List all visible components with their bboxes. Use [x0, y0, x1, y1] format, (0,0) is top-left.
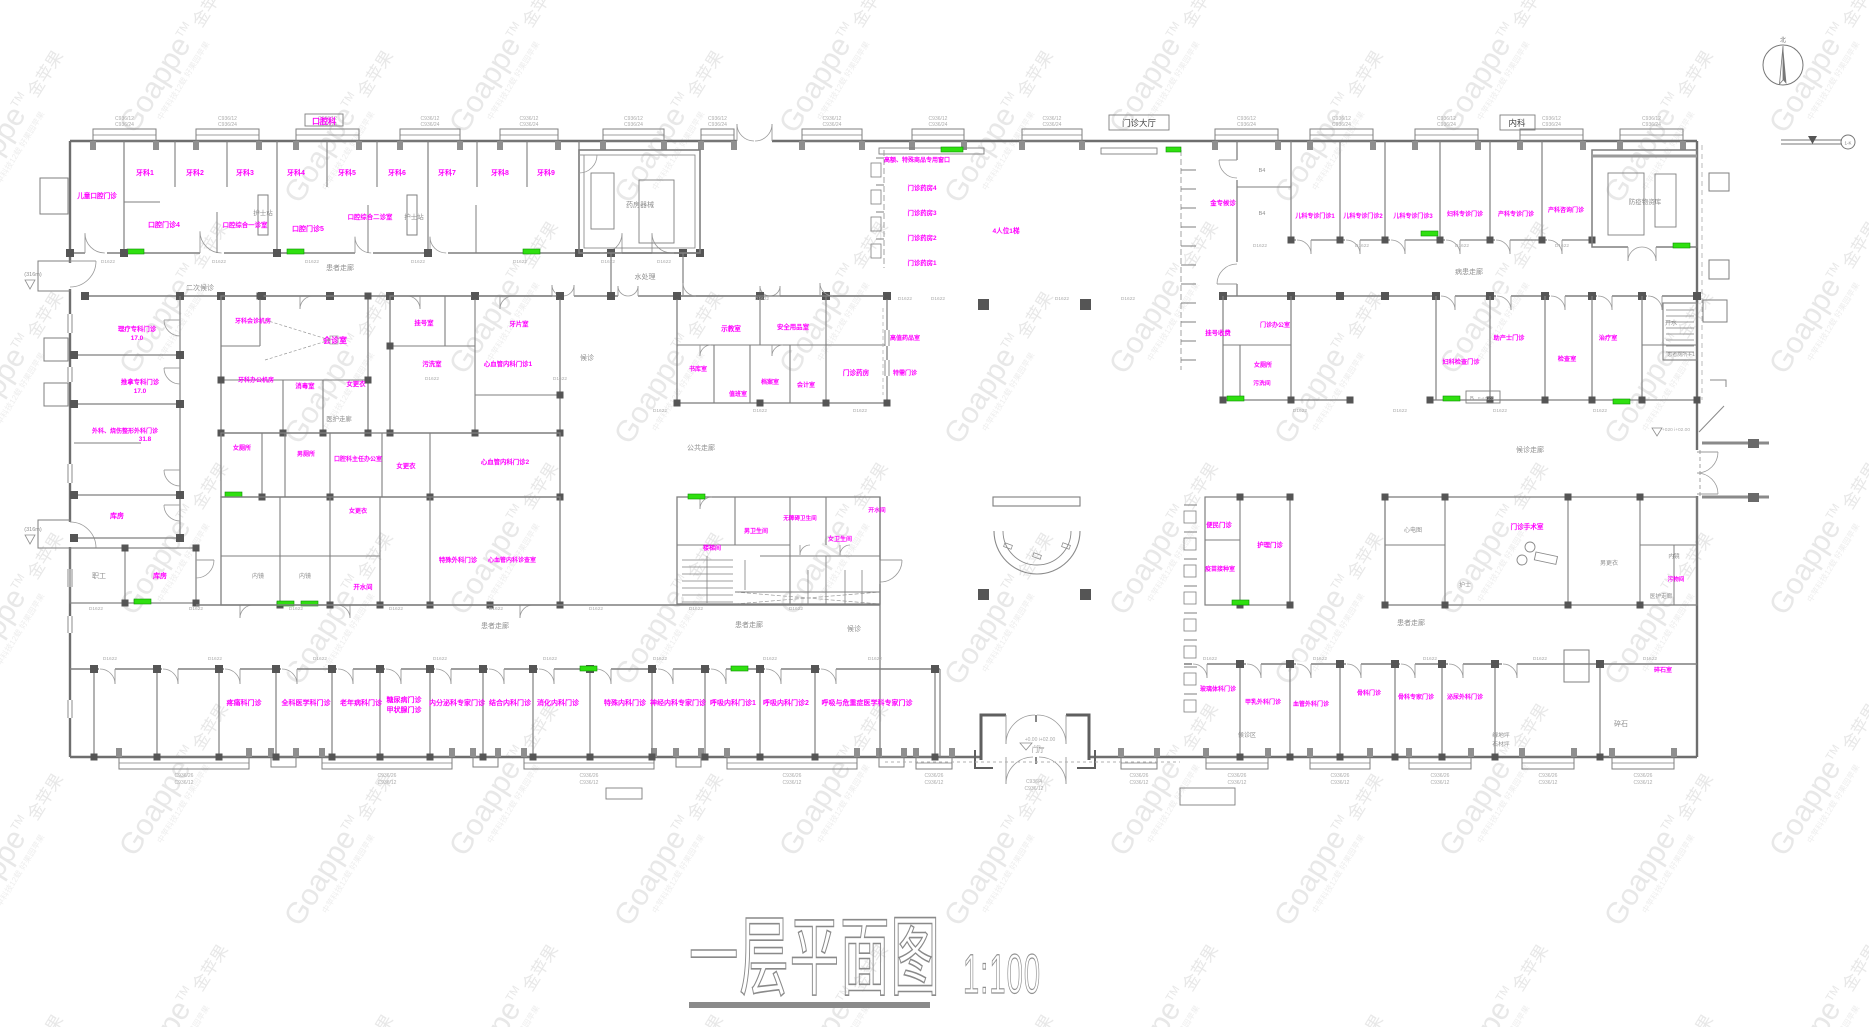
svg-text:C936/24: C936/24: [1542, 122, 1561, 128]
svg-text:档案室: 档案室: [760, 378, 779, 386]
svg-text:二次候诊: 二次候诊: [186, 283, 214, 292]
svg-text:C936/26: C936/26: [378, 773, 397, 779]
svg-text:C936/12: C936/12: [175, 780, 194, 786]
svg-text:C936/26: C936/26: [1130, 773, 1149, 779]
svg-text:女更衣: 女更衣: [349, 507, 367, 515]
svg-text:一层平面图: 一层平面图: [689, 909, 941, 1008]
svg-text:特殊内科门诊: 特殊内科门诊: [604, 698, 647, 707]
svg-text:护士: 护士: [1459, 581, 1471, 589]
svg-text:口腔门诊4: 口腔门诊4: [148, 220, 180, 229]
svg-text:内镜: 内镜: [252, 572, 264, 580]
svg-text:D1622: D1622: [1055, 296, 1069, 302]
svg-text:呼吸与危重症医学科专家门诊: 呼吸与危重症医学科专家门诊: [822, 698, 914, 707]
svg-text:患者走廊: 患者走廊: [326, 263, 354, 272]
svg-text:产科专诊门诊: 产科专诊门诊: [1498, 210, 1535, 218]
svg-text:门诊药房2: 门诊药房2: [907, 233, 937, 242]
svg-text:D1622: D1622: [853, 408, 867, 414]
svg-text:D1622: D1622: [789, 606, 803, 612]
svg-text:女厕所: 女厕所: [1254, 361, 1272, 369]
svg-text:病患走廊: 病患走廊: [1455, 267, 1483, 276]
svg-text:心血管内科门诊2: 心血管内科门诊2: [481, 457, 530, 466]
svg-text:医护走廊: 医护走廊: [326, 414, 352, 423]
svg-text:女卫生间: 女卫生间: [828, 535, 852, 543]
svg-text:C936/24: C936/24: [218, 122, 237, 128]
svg-text:男更衣: 男更衣: [1600, 559, 1618, 567]
svg-text:C936/12: C936/12: [1634, 780, 1653, 786]
svg-text:血管外科门诊: 血管外科门诊: [1293, 700, 1330, 708]
svg-text:C936/26: C936/26: [175, 773, 194, 779]
svg-text:候诊: 候诊: [847, 624, 861, 633]
svg-text:职工: 职工: [92, 572, 106, 580]
svg-text:1:100: 1:100: [963, 944, 1041, 1005]
svg-text:D1622: D1622: [313, 656, 327, 662]
svg-text:绿地坪: 绿地坪: [1492, 731, 1510, 739]
svg-text:门诊药房1: 门诊药房1: [907, 258, 937, 267]
svg-text:儿科专诊门诊2: 儿科专诊门诊2: [1342, 212, 1383, 220]
svg-text:C936/12: C936/12: [580, 780, 599, 786]
svg-text:消毒室: 消毒室: [295, 381, 315, 390]
svg-text:心血管内科诊查室: 心血管内科诊查室: [488, 556, 536, 564]
svg-text:D1622: D1622: [425, 376, 439, 382]
svg-text:污洗间: 污洗间: [1253, 379, 1271, 387]
svg-text:1-K: 1-K: [1844, 141, 1851, 146]
svg-text:C936/4: C936/4: [1026, 779, 1042, 785]
svg-text:+020 i+02.00: +020 i+02.00: [1662, 427, 1690, 433]
svg-text:17.0: 17.0: [134, 388, 147, 395]
svg-text:4人位1梯: 4人位1梯: [992, 226, 1020, 235]
svg-text:玻璃体科门诊: 玻璃体科门诊: [1200, 685, 1237, 693]
svg-text:牙科7: 牙科7: [438, 168, 456, 177]
svg-text:C936/26: C936/26: [1228, 773, 1247, 779]
svg-text:D1622: D1622: [1393, 408, 1407, 414]
svg-text:妇科检查门诊: 妇科检查门诊: [1441, 358, 1480, 366]
svg-text:C936/12: C936/12: [1331, 780, 1350, 786]
svg-text:牙科5: 牙科5: [338, 168, 356, 177]
svg-text:挂号室: 挂号室: [414, 318, 434, 327]
svg-text:口腔综合一诊室: 口腔综合一诊室: [223, 220, 268, 229]
svg-text:D1622: D1622: [755, 296, 769, 302]
svg-text:楼梯间: 楼梯间: [703, 544, 721, 552]
svg-text:F-A0101: F-A0101: [1478, 396, 1495, 401]
svg-text:D1622: D1622: [1121, 296, 1135, 302]
svg-text:C936/12: C936/12: [1025, 786, 1044, 792]
svg-text:污洗室: 污洗室: [422, 359, 442, 368]
svg-text:D1622: D1622: [1355, 243, 1369, 249]
svg-text:C936/12: C936/12: [378, 780, 397, 786]
svg-text:门诊药房: 门诊药房: [843, 368, 870, 377]
svg-text:D1622: D1622: [653, 656, 667, 662]
svg-text:C936/24: C936/24: [115, 122, 134, 128]
svg-text:特需门诊: 特需门诊: [893, 369, 918, 377]
svg-text:D1622: D1622: [1533, 656, 1547, 662]
svg-text:D1622: D1622: [589, 606, 603, 612]
svg-text:D1622: D1622: [543, 656, 557, 662]
svg-text:D1622: D1622: [513, 259, 527, 265]
svg-text:17.0: 17.0: [131, 335, 144, 342]
svg-text:B4: B4: [1259, 168, 1266, 174]
svg-text:D1622: D1622: [1253, 243, 1267, 249]
svg-text:牙科9: 牙科9: [537, 168, 555, 177]
svg-text:便民门诊: 便民门诊: [1206, 520, 1232, 529]
svg-text:C936/24: C936/24: [421, 122, 440, 128]
svg-text:库房: 库房: [110, 511, 124, 520]
svg-text:门诊办公室: 门诊办公室: [1260, 321, 1290, 329]
svg-text:B4: B4: [1259, 211, 1266, 217]
svg-text:糖尿病门诊: 糖尿病门诊: [387, 695, 423, 704]
svg-text:疼痛科门诊: 疼痛科门诊: [227, 698, 263, 707]
svg-text:内分泌科专家门诊: 内分泌科专家门诊: [429, 698, 486, 707]
svg-text:理疗专科门诊: 理疗专科门诊: [118, 324, 157, 333]
svg-text:D1622: D1622: [101, 259, 115, 265]
svg-text:助产士门诊: 助产士门诊: [1494, 334, 1526, 342]
svg-text:D1622: D1622: [389, 606, 403, 612]
svg-text:泌尿外科门诊: 泌尿外科门诊: [1447, 693, 1484, 701]
svg-text:D1622: D1622: [1423, 656, 1437, 662]
svg-text:儿科专诊门诊3: 儿科专诊门诊3: [1392, 212, 1433, 220]
svg-text:C936/12: C936/12: [1228, 780, 1247, 786]
svg-text:D1622: D1622: [601, 259, 615, 265]
svg-text:D1622: D1622: [212, 259, 226, 265]
svg-text:D1622: D1622: [1293, 408, 1307, 414]
svg-text:D1622: D1622: [189, 606, 203, 612]
svg-text:护士站: 护士站: [404, 212, 424, 221]
svg-text:石材坪: 石材坪: [1492, 740, 1510, 748]
svg-text:D1622: D1622: [653, 408, 667, 414]
svg-text:男厕所: 男厕所: [297, 450, 315, 458]
svg-text:北: 北: [1780, 36, 1786, 44]
svg-text:D1622: D1622: [1643, 656, 1657, 662]
svg-text:金专候诊: 金专候诊: [1209, 198, 1236, 207]
svg-text:医护走廊: 医护走廊: [1650, 592, 1673, 600]
svg-text:门诊大厅: 门诊大厅: [1122, 118, 1157, 128]
svg-text:候诊: 候诊: [580, 353, 594, 362]
svg-text:呼吸内科门诊1: 呼吸内科门诊1: [710, 698, 756, 707]
svg-text:会诊室: 会诊室: [323, 335, 347, 345]
svg-text:开水间: 开水间: [353, 582, 372, 591]
svg-text:儿童口腔门诊: 儿童口腔门诊: [76, 191, 117, 200]
svg-text:D1622: D1622: [1455, 243, 1469, 249]
svg-text:牙科办公机房: 牙科办公机房: [238, 376, 274, 384]
svg-text:检查室: 检查室: [1558, 355, 1577, 363]
svg-text:牙科会诊机房: 牙科会诊机房: [235, 317, 271, 325]
svg-text:公共走廊: 公共走廊: [687, 443, 715, 452]
svg-text:31.8: 31.8: [139, 436, 152, 443]
svg-text:D1622: D1622: [208, 656, 222, 662]
svg-text:会计室: 会计室: [797, 381, 815, 389]
svg-text:D1622: D1622: [289, 606, 303, 612]
svg-text:甲状腺门诊: 甲状腺门诊: [387, 705, 423, 714]
svg-text:无障碍卫生间: 无障碍卫生间: [782, 514, 817, 522]
svg-text:C936/24: C936/24: [823, 122, 842, 128]
svg-text:特殊外科门诊: 特殊外科门诊: [439, 555, 478, 564]
svg-text:库房: 库房: [153, 571, 167, 580]
svg-text:女厕所: 女厕所: [233, 444, 251, 452]
svg-text:C936/12: C936/12: [925, 780, 944, 786]
svg-text:D1622: D1622: [763, 656, 777, 662]
svg-text:C936/24: C936/24: [1043, 122, 1062, 128]
svg-text:C936/24: C936/24: [624, 122, 643, 128]
svg-text:外科、烧伤整形外科门诊: 外科、烧伤整形外科门诊: [91, 427, 159, 435]
svg-text:门诊药房4: 门诊药房4: [907, 183, 937, 192]
svg-text:高额、特殊商品专用窗口: 高额、特殊商品专用窗口: [884, 156, 950, 164]
svg-text:C936/26: C936/26: [783, 773, 802, 779]
svg-text:口腔科主任办公室: 口腔科主任办公室: [334, 455, 382, 463]
svg-text:老年病科门诊: 老年病科门诊: [339, 698, 383, 707]
svg-text:C936/24: C936/24: [1437, 122, 1456, 128]
svg-text:甲乳外科门诊: 甲乳外科门诊: [1245, 698, 1282, 706]
svg-text:牙科4: 牙科4: [287, 168, 305, 177]
svg-text:候诊走廊: 候诊走廊: [1516, 445, 1544, 454]
svg-text:D1622: D1622: [657, 259, 671, 265]
svg-text:内镜: 内镜: [299, 572, 311, 580]
svg-text:牙科8: 牙科8: [491, 168, 509, 177]
svg-text:C936/26: C936/26: [580, 773, 599, 779]
svg-text:D1622: D1622: [489, 606, 503, 612]
svg-text:产科咨询门诊: 产科咨询门诊: [1548, 206, 1585, 214]
svg-text:呼吸内科门诊2: 呼吸内科门诊2: [763, 698, 809, 707]
svg-text:示教室: 示教室: [720, 324, 741, 333]
svg-text:碎石室: 碎石室: [1654, 666, 1672, 674]
svg-text:口腔科: 口腔科: [312, 116, 336, 126]
svg-text:D1622: D1622: [1493, 408, 1507, 414]
svg-text:结合内科门诊: 结合内科门诊: [488, 698, 532, 707]
svg-text:书库室: 书库室: [689, 365, 707, 373]
svg-text:C936/24: C936/24: [1237, 122, 1256, 128]
svg-text:D1622: D1622: [1203, 656, 1217, 662]
svg-text:C936/26: C936/26: [1539, 773, 1558, 779]
svg-text:安全用品室: 安全用品室: [777, 322, 810, 331]
svg-text:(316m): (316m): [24, 272, 42, 278]
svg-text:C936/24: C936/24: [708, 122, 727, 128]
svg-text:心血管内科门诊1: 心血管内科门诊1: [484, 359, 533, 368]
svg-text:C936/26: C936/26: [1431, 773, 1450, 779]
svg-text:C936/24: C936/24: [1332, 122, 1351, 128]
svg-text:高值药品室: 高值药品室: [890, 334, 920, 342]
svg-text:骨科门诊: 骨科门诊: [1357, 689, 1382, 697]
svg-text:D1622: D1622: [433, 656, 447, 662]
svg-text:妇科专诊门诊: 妇科专诊门诊: [1447, 210, 1484, 218]
svg-text:心电图: 心电图: [1404, 526, 1422, 534]
svg-text:C936/26: C936/26: [1331, 773, 1350, 779]
svg-text:门诊药房3: 门诊药房3: [907, 208, 937, 217]
svg-text:开水间: 开水间: [868, 506, 886, 514]
svg-text:值班室: 值班室: [729, 390, 747, 398]
svg-text:C936/12: C936/12: [783, 780, 802, 786]
svg-text:C936/24: C936/24: [1642, 122, 1661, 128]
svg-text:儿科专诊门诊1: 儿科专诊门诊1: [1294, 212, 1335, 220]
svg-text:D1622: D1622: [1313, 656, 1327, 662]
svg-text:C936/12: C936/12: [1539, 780, 1558, 786]
svg-text:女更衣: 女更衣: [346, 379, 366, 388]
svg-text:D1622: D1622: [868, 656, 882, 662]
svg-text:C936/24: C936/24: [929, 122, 948, 128]
svg-text:全科医学科门诊: 全科医学科门诊: [281, 698, 332, 707]
svg-text:(316m): (316m): [24, 527, 42, 533]
svg-text:牙科3: 牙科3: [236, 168, 254, 177]
svg-text:D1622: D1622: [305, 259, 319, 265]
svg-text:治疗室: 治疗室: [1599, 334, 1618, 342]
svg-text:男卫生间: 男卫生间: [744, 527, 768, 535]
svg-text:D1622: D1622: [553, 376, 567, 382]
svg-text:C936/26: C936/26: [925, 773, 944, 779]
svg-text:D1622: D1622: [89, 606, 103, 612]
svg-text:C936/26: C936/26: [1634, 773, 1653, 779]
svg-text:内镜: 内镜: [1668, 552, 1680, 560]
svg-text:C936/12: C936/12: [1130, 780, 1149, 786]
svg-text:C936/24: C936/24: [520, 122, 539, 128]
svg-text:口腔综合二诊室: 口腔综合二诊室: [348, 212, 393, 221]
svg-text:牙片室: 牙片室: [509, 319, 529, 328]
svg-text:D1622: D1622: [898, 296, 912, 302]
svg-text:牙科2: 牙科2: [186, 168, 204, 177]
svg-text:护士站: 护士站: [253, 208, 273, 217]
svg-text:门诊手术室: 门诊手术室: [1511, 522, 1544, 531]
svg-text:女更衣: 女更衣: [396, 461, 416, 470]
svg-text:内科: 内科: [1508, 118, 1526, 128]
svg-text:C936/12: C936/12: [1431, 780, 1450, 786]
svg-text:D1622: D1622: [411, 259, 425, 265]
svg-text:防疫物资库: 防疫物资库: [1629, 197, 1662, 206]
svg-text:B: B: [1470, 396, 1474, 402]
svg-text:D1622: D1622: [103, 656, 117, 662]
svg-text:D1622: D1622: [1593, 408, 1607, 414]
svg-text:神经内科专家门诊: 神经内科专家门诊: [650, 698, 707, 707]
svg-text:患者走廊: 患者走廊: [1397, 618, 1425, 627]
svg-text:推拿专科门诊: 推拿专科门诊: [121, 377, 160, 386]
svg-text:候诊区: 候诊区: [1238, 731, 1256, 739]
svg-text:碎石: 碎石: [1614, 719, 1628, 728]
svg-text:开水: 开水: [1665, 319, 1677, 327]
svg-text:患者走廊: 患者走廊: [481, 621, 509, 630]
svg-text:口腔门诊5: 口腔门诊5: [292, 224, 324, 233]
svg-text:消化内科门诊: 消化内科门诊: [537, 698, 580, 707]
svg-text:挂号收费: 挂号收费: [1205, 328, 1231, 337]
svg-text:污物间: 污物间: [1668, 575, 1685, 583]
svg-text:疫苗接种室: 疫苗接种室: [1205, 565, 1235, 573]
svg-text:患者走廊: 患者走廊: [735, 620, 763, 629]
svg-text:水处理: 水处理: [635, 272, 656, 281]
svg-text:+0.00 i+02.00: +0.00 i+02.00: [1025, 737, 1056, 743]
svg-text:D1622: D1622: [753, 408, 767, 414]
svg-text:445: 445: [1033, 744, 1041, 749]
svg-text:D1622: D1622: [1555, 243, 1569, 249]
svg-text:药房器械: 药房器械: [626, 200, 654, 209]
svg-text:骨科专家门诊: 骨科专家门诊: [1398, 693, 1435, 701]
svg-text:护理门诊: 护理门诊: [1257, 540, 1283, 549]
svg-text:D1622: D1622: [689, 606, 703, 612]
svg-text:D1622: D1622: [931, 296, 945, 302]
svg-text:牙科1: 牙科1: [136, 168, 154, 177]
svg-text:牙科6: 牙科6: [388, 168, 406, 177]
